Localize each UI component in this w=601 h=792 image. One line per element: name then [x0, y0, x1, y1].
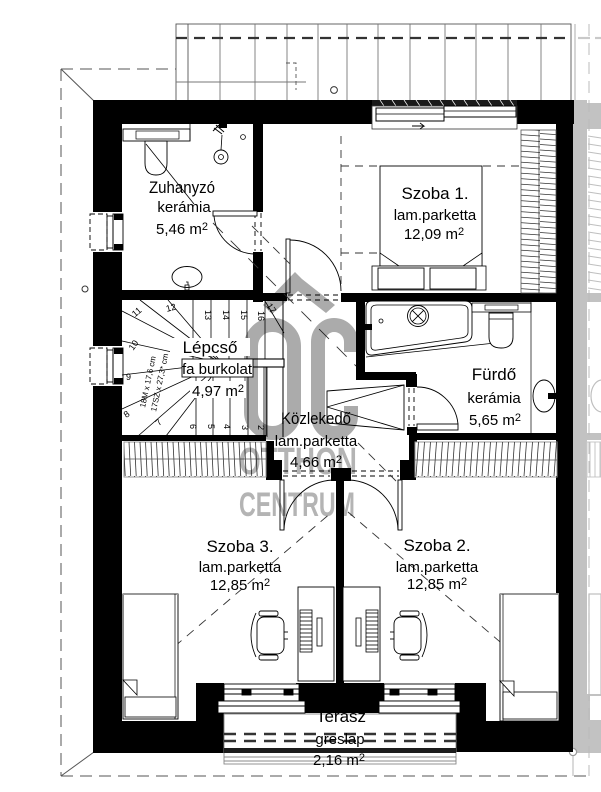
svg-text:Szoba 3.: Szoba 3.	[206, 537, 273, 556]
svg-text:14: 14	[221, 310, 231, 320]
svg-text:greslap: greslap	[315, 731, 364, 748]
svg-text:lam.parketta: lam.parketta	[394, 207, 477, 224]
svg-text:lam.parketta: lam.parketta	[275, 433, 358, 450]
svg-text:6: 6	[188, 424, 198, 429]
svg-text:lam.parketta: lam.parketta	[396, 559, 479, 576]
svg-text:5,65 m2: 5,65 m2	[469, 412, 521, 429]
svg-text:4,97 m2: 4,97 m2	[192, 383, 244, 400]
svg-text:Lépcső: Lépcső	[183, 338, 238, 357]
svg-text:Terasz: Terasz	[316, 707, 366, 726]
svg-text:Fürdő: Fürdő	[472, 365, 516, 384]
svg-text:12,85 m2: 12,85 m2	[210, 577, 270, 594]
svg-text:4: 4	[222, 424, 232, 429]
svg-text:12,09 m2: 12,09 m2	[404, 226, 464, 243]
svg-text:13: 13	[203, 310, 213, 320]
svg-text:4,66 m2: 4,66 m2	[290, 454, 342, 471]
svg-text:Szoba 1.: Szoba 1.	[401, 184, 468, 203]
svg-text:9: 9	[126, 372, 131, 382]
svg-text:15: 15	[239, 310, 249, 320]
svg-text:2,16 m2: 2,16 m2	[313, 752, 365, 769]
svg-text:5,46 m2: 5,46 m2	[156, 221, 208, 238]
svg-text:kerámia: kerámia	[157, 199, 211, 216]
svg-text:lam.parketta: lam.parketta	[199, 559, 282, 576]
svg-text:Zuhanyzó: Zuhanyzó	[149, 178, 215, 197]
svg-text:12,85 m2: 12,85 m2	[407, 576, 467, 593]
svg-text:fa burkolat: fa burkolat	[182, 361, 253, 378]
svg-text:Szoba 2.: Szoba 2.	[403, 536, 470, 555]
svg-text:CENTRUM: CENTRUM	[239, 486, 355, 524]
svg-text:Közlekedő: Közlekedő	[281, 409, 351, 428]
svg-text:5: 5	[206, 424, 216, 429]
svg-text:kerámia: kerámia	[467, 390, 521, 407]
